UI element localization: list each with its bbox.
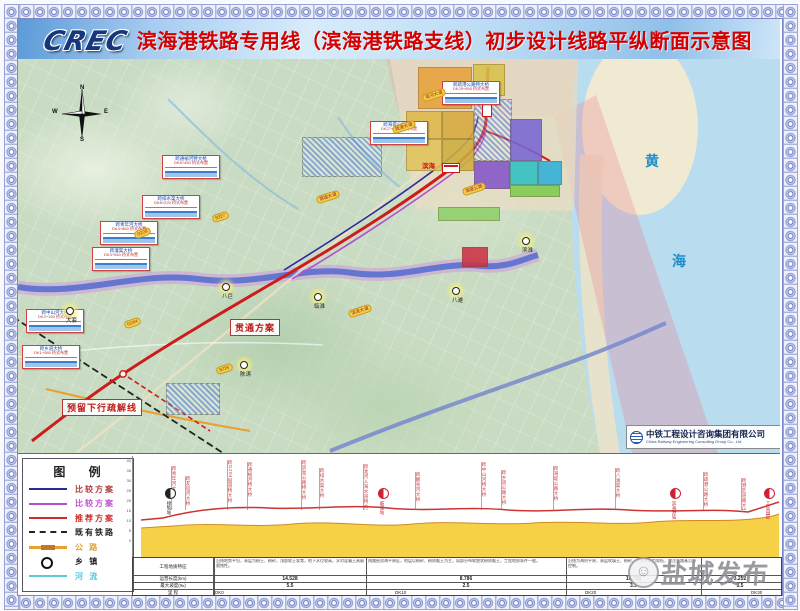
town-marker: 滨淮 — [522, 237, 533, 254]
legend-line — [29, 488, 67, 490]
poster-page: CREC 滨海港铁路专用线（滨海港铁路支线）初步设计线路平纵断面示意图 — [0, 0, 800, 611]
axis-tick: 25 — [121, 488, 131, 493]
legend-item: 公 路 — [23, 540, 133, 555]
section-gradient: 5.5 — [214, 583, 366, 589]
bridge-callout: 跨灌渠大桥DK3+540 桥式布置 — [92, 247, 150, 271]
town-dot — [522, 237, 530, 245]
callout-bridge-diagram — [25, 357, 77, 367]
section-length: 14.528 — [214, 576, 366, 582]
legend-sample — [29, 571, 67, 581]
gradeline — [141, 502, 779, 520]
profile-station: 滨海港站 — [670, 488, 681, 519]
legend-sample — [29, 557, 67, 567]
legend-dashed-line — [29, 531, 67, 533]
town-marker: 临淮 — [314, 293, 325, 310]
callout-sub: DK6+450 桥式布置 — [163, 161, 219, 166]
hatch-area-2 — [166, 383, 220, 415]
profile-annotation: 跨翻身河大桥 — [415, 472, 421, 510]
port-block-purple2 — [510, 119, 542, 161]
legend-item: 河 流 — [23, 569, 133, 584]
watermark-text: 盐城发布 — [660, 554, 771, 591]
milepost: DK10 — [395, 590, 406, 595]
legend-sample — [29, 499, 67, 509]
profile-annotation: 跨友谊河大桥 — [185, 476, 191, 510]
callout-bridge-diagram — [165, 167, 217, 177]
bridge-callout: 跨疏港公路特大桥DK29+850 桥式布置 — [442, 81, 500, 105]
profile-annotation: 跨港区道路大桥 — [741, 478, 747, 510]
axis-tick: 40 — [121, 458, 131, 463]
axis-tick: 35 — [121, 468, 131, 473]
border-bottom-pattern — [4, 595, 798, 610]
milepost: DK20 — [585, 590, 596, 595]
profile-plot: 4035302520151050 跨青年河大桥跨友谊河大桥跨G204国道特大桥跨… — [132, 456, 781, 557]
port-block-blue-hatch — [474, 99, 512, 161]
legend-item-label: 比较方案 — [75, 484, 115, 495]
callout-sub: DK1+080 桥式布置 — [23, 351, 79, 356]
town-dot — [66, 307, 74, 315]
station-symbol — [764, 488, 775, 499]
town-marker: 大套 — [66, 307, 77, 324]
station-symbol — [378, 488, 389, 499]
town-marker: 八滩 — [452, 287, 463, 304]
attribution-box: 中铁工程设计咨询集团有限公司 China Railway Engineering… — [626, 425, 780, 449]
bridge-callout: 跨排水渠大桥DK8+220 桥式布置 — [142, 195, 200, 219]
profile-annotation: 跨疏港公路大桥 — [703, 472, 709, 510]
town-dot — [452, 287, 460, 295]
sea-label-hai: 海 — [672, 251, 686, 271]
legend-item: 比较方案 — [23, 497, 133, 512]
axis-tick: 10 — [121, 518, 131, 523]
station-symbol — [670, 488, 681, 499]
border-top-pattern — [4, 4, 798, 19]
callout-sub: DK29+850 桥式布置 — [443, 87, 499, 92]
town-marker: 陈涛 — [240, 361, 251, 378]
legend-item: 推荐方案 — [23, 511, 133, 526]
route-map: 黄 海 N W E S 贯通方案 预留下行疏解线 滨海 中铁工程设计咨询集团有 — [18, 59, 780, 453]
legend-item-label: 推荐方案 — [75, 513, 115, 524]
milepost: DK0 — [215, 590, 224, 595]
legend-line — [29, 503, 67, 505]
profile-annotation: 跨海堤公路大桥 — [553, 466, 559, 510]
title-bar: CREC 滨海港铁路专用线（滨海港铁路支线）初步设计线路平纵断面示意图 — [18, 19, 780, 59]
section-gradient: 2.5 — [366, 583, 566, 589]
attribution-en: China Railway Engineering Consulting Gro… — [646, 439, 765, 444]
map-station-binhai — [442, 163, 460, 173]
table-label-column: 工程地质特征 运营长度(km) 最大坡度(‰) 里 程 — [133, 558, 214, 595]
town-marker: 八巨 — [222, 283, 233, 300]
callout-sub: DK3+540 桥式布置 — [93, 253, 149, 258]
legend-item: 比较方案 — [23, 482, 133, 497]
town-name: 陈涛 — [240, 370, 251, 378]
legend-sample — [29, 484, 67, 494]
through-scheme-label: 贯通方案 — [230, 319, 280, 336]
profile-annotation: 跨淮河入海水道特大桥 — [363, 464, 369, 510]
sea-label-huang: 黄 — [645, 151, 659, 171]
station-name: 滨海港站 — [672, 501, 677, 519]
legend-sample — [29, 542, 67, 552]
station-name: 接轨站 — [167, 501, 172, 515]
row-label-geology: 工程地质特征 — [133, 564, 213, 570]
bridge-callout: 跨通榆河特大桥DK6+450 桥式布置 — [162, 155, 220, 179]
profile-station: 接轨站 — [165, 488, 176, 515]
port-block-red — [462, 247, 488, 267]
axis-tick: 0 — [121, 538, 131, 543]
callout-bridge-diagram — [145, 207, 197, 217]
town-name: 大套 — [66, 316, 77, 324]
station-name: 工业园区 — [766, 501, 771, 519]
town-dot — [222, 283, 230, 291]
row-label-length: 运营长度(km) — [133, 576, 213, 582]
callout-bridge-diagram — [373, 133, 425, 143]
mascot-icon: ☺ — [628, 557, 659, 588]
port-block-yellow3 — [442, 111, 474, 139]
river-small-1 — [168, 99, 298, 209]
axis-tick: 15 — [121, 508, 131, 513]
legend-title: 图 例 — [31, 463, 133, 480]
compass-icon: N W E S — [56, 87, 108, 145]
geology-text: 线路经滨海平原区，地层以粉砂、粉质黏土为主，局部分布软塑状粉质黏土，工程地质条件… — [368, 559, 564, 574]
junction-symbol — [120, 371, 126, 377]
border-right-pattern — [783, 4, 798, 610]
legend-item-label: 公 路 — [75, 542, 99, 553]
profile-annotation: 跨滨淮公路特大桥 — [301, 460, 307, 510]
row-label-gradient: 最大坡度(‰) — [133, 583, 213, 589]
attribution-cn: 中铁工程设计咨询集团有限公司 — [646, 430, 765, 439]
port-block-green1 — [510, 185, 560, 197]
row-label-mileage: 里 程 — [133, 590, 213, 596]
legend-item-label: 乡 镇 — [75, 556, 99, 567]
town-name: 临淮 — [314, 302, 325, 310]
axis-tick: 30 — [121, 478, 131, 483]
town-dot — [240, 361, 248, 369]
profile-station: 临淮站 — [378, 488, 389, 515]
geology-text: 沿线地势平坦，表层为粉土、粉砂，浅部软土发育，地下水位较高，水对混凝土具弱腐蚀性… — [216, 559, 364, 574]
legend-sample — [29, 513, 67, 523]
profile-annotation: 跨排水渠大桥 — [319, 468, 325, 510]
callout-bridge-diagram — [445, 93, 497, 103]
bridge-callout: 跨乡道大桥DK1+080 桥式布置 — [22, 345, 80, 369]
legend-item-label: 既有铁路 — [75, 527, 115, 538]
profile-annotation: 跨中山河特大桥 — [481, 462, 487, 510]
profile-annotation: 跨乡道公路大桥 — [501, 470, 507, 510]
legend-town-circle — [41, 557, 53, 569]
crecg-logo-icon — [630, 431, 643, 444]
town-dot — [314, 293, 322, 301]
legend-sample — [29, 528, 67, 538]
callout-sub: DK8+220 桥式布置 — [143, 201, 199, 206]
legend-item-label: 比较方案 — [75, 498, 115, 509]
port-block-cyan1 — [510, 161, 538, 185]
legend-item: 乡 镇 — [23, 555, 133, 570]
axis-tick: 20 — [121, 498, 131, 503]
legend-item: 既有铁路 — [23, 526, 133, 541]
legend-box: 图 例 比较方案比较方案推荐方案既有铁路公 路乡 镇河 流 — [22, 458, 134, 592]
profile-annotation: 跨G204国道特大桥 — [227, 460, 233, 510]
profile-annotation: 跨通榆河特大桥 — [247, 462, 253, 510]
legend-line — [29, 575, 67, 577]
town-name: 八巨 — [222, 292, 233, 300]
town-name: 滨淮 — [522, 246, 533, 254]
axis-tick: 5 — [121, 528, 131, 533]
station-name: 临淮站 — [380, 501, 385, 515]
crec-logo: CREC — [40, 26, 131, 57]
callout-bridge-diagram — [95, 259, 147, 269]
town-name: 八滩 — [452, 296, 463, 304]
map-station-label: 滨海 — [422, 160, 435, 170]
port-block-green2 — [438, 207, 500, 221]
port-block-cyan2 — [538, 161, 562, 185]
legend-line — [29, 517, 67, 519]
page-title: 滨海港铁路专用线（滨海港铁路支线）初步设计线路平纵断面示意图 — [137, 25, 752, 54]
watermark: ☺ 盐城发布 — [628, 549, 793, 595]
section-length: 8.786 — [366, 576, 566, 582]
reserved-line-label: 预留下行疏解线 — [62, 399, 142, 416]
legend-item-label: 河 流 — [75, 571, 99, 582]
profile-station: 工业园区 — [764, 488, 775, 519]
legend-road-line — [29, 546, 67, 549]
profile-annotation: 跨八滩渠大桥 — [615, 468, 621, 510]
station-symbol — [165, 488, 176, 499]
